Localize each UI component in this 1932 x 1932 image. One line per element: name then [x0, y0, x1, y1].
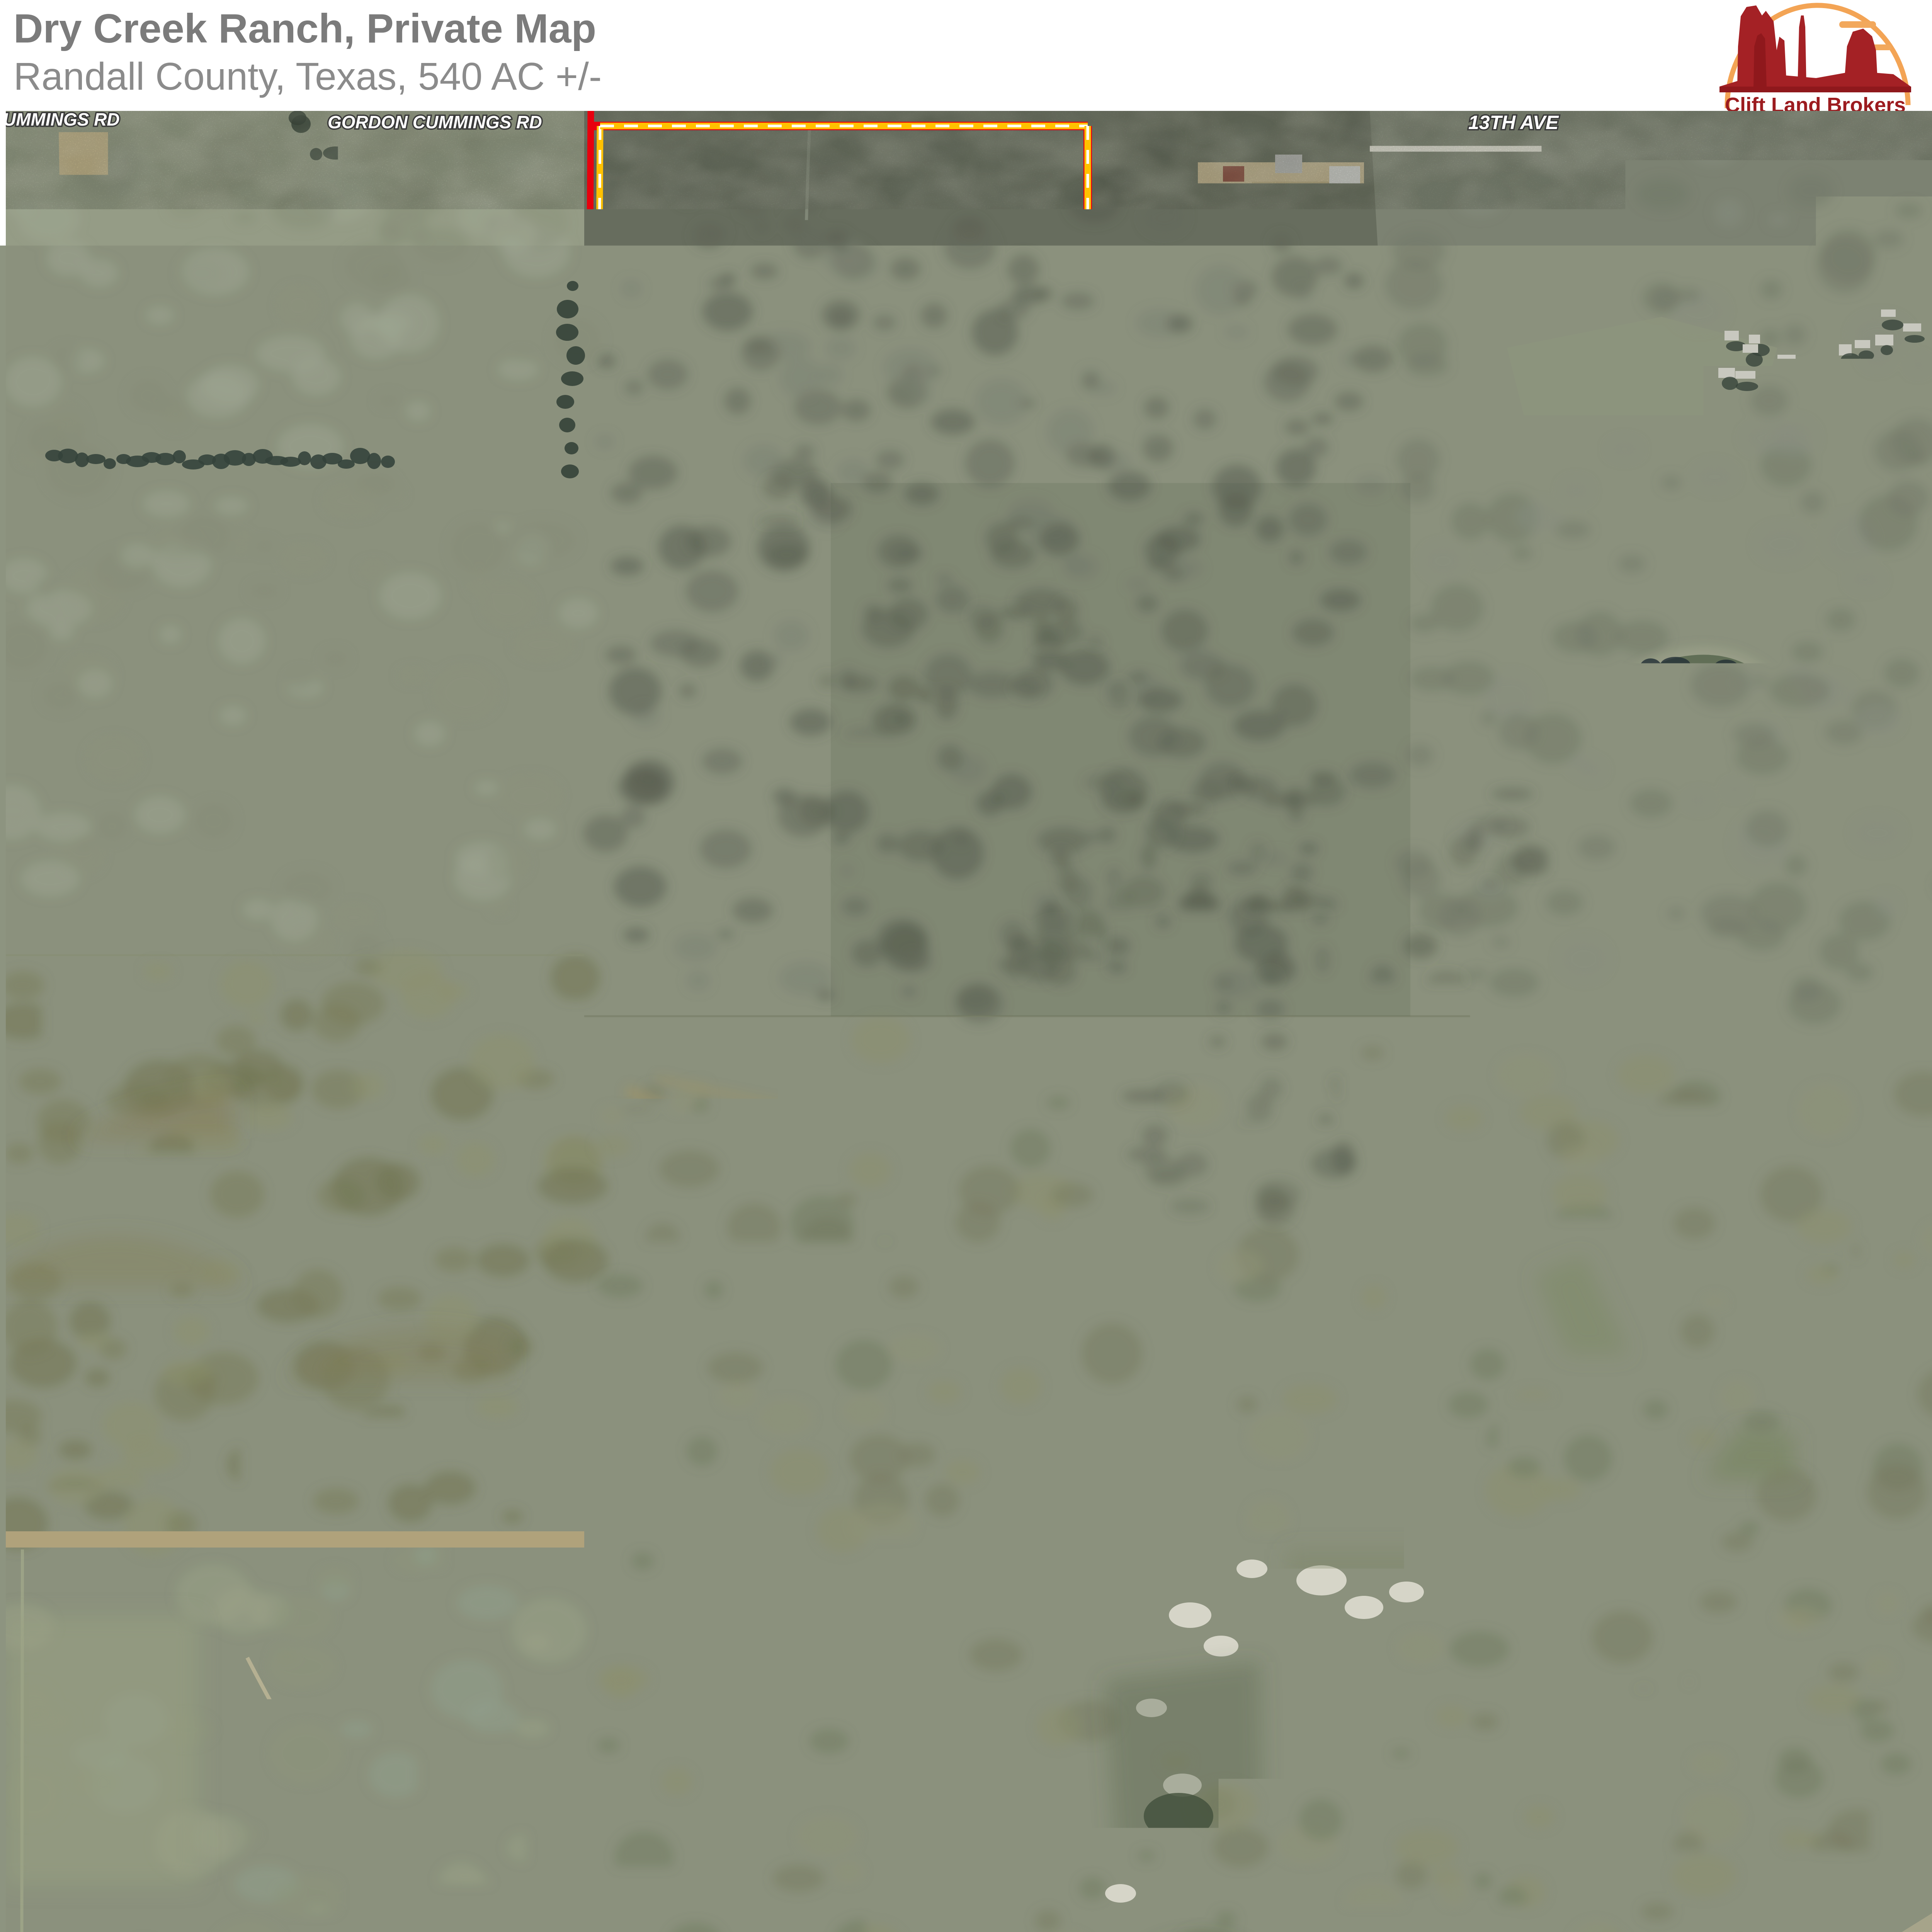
svg-text:8TH AVE: 8TH AVE — [1859, 285, 1932, 306]
svg-text:HELIUM RD: HELIUM RD — [577, 548, 593, 630]
svg-text:VALLEY CIR: VALLEY CIR — [3, 259, 20, 350]
svg-text:HELIUM RD: HELIUM RD — [570, 1634, 586, 1716]
svg-text:GORDON CUMMINGS RD: GORDON CUMMINGS RD — [328, 112, 542, 132]
svg-text:PONDASETA RD: PONDASETA RD — [321, 1528, 462, 1548]
svg-text:GORDON CUMMINGS RD: GORDON CUMMINGS RD — [0, 109, 120, 129]
svg-text:HELIUM RD: HELIUM RD — [575, 846, 591, 927]
svg-text:13TH AVE: 13TH AVE — [1468, 112, 1559, 133]
svg-text:Randall County, Texas, 540 AC: Randall County, Texas, 540 AC +/- — [14, 55, 602, 98]
svg-text:HELIUM RD: HELIUM RD — [568, 1847, 584, 1928]
svg-text:HELIUM RD: HELIUM RD — [571, 1383, 587, 1464]
svg-text:HELIUM RD: HELIUM RD — [578, 299, 594, 381]
svg-text:RD: RD — [7, 1526, 32, 1546]
svg-text:PONDASETA RD: PONDASETA RD — [101, 1526, 241, 1546]
svg-text:Dry Creek Ranch, Private Map: Dry Creek Ranch, Private Map — [14, 6, 596, 51]
